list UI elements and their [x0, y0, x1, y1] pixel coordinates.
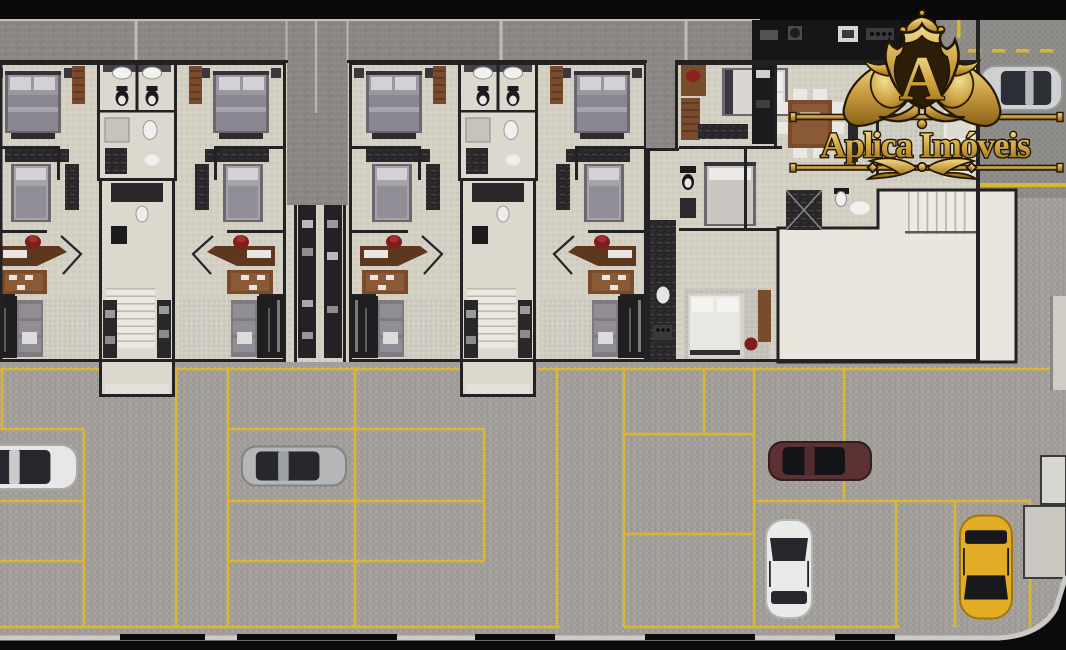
svg-text:Aplica Imóveis: Aplica Imóveis	[820, 125, 1029, 165]
svg-text:A: A	[900, 45, 945, 113]
